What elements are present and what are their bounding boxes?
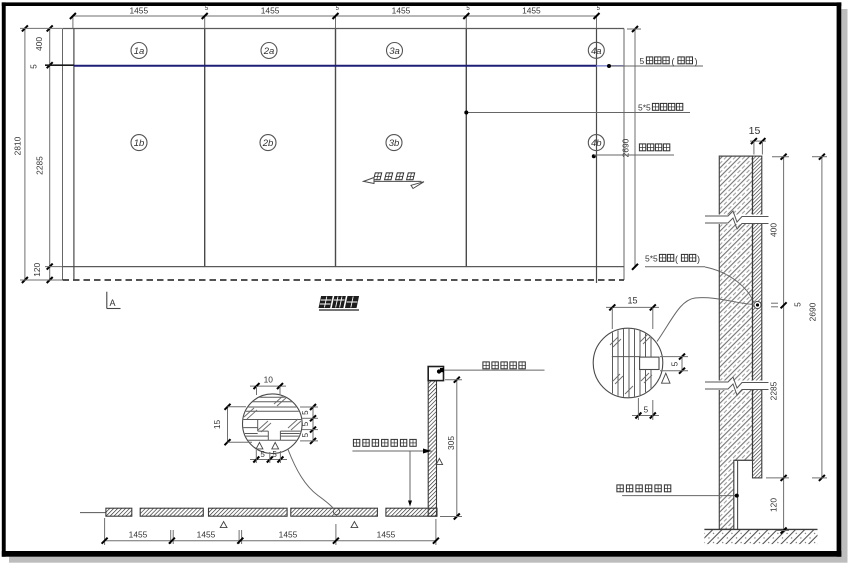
svg-text:4b: 4b — [591, 138, 602, 149]
svg-text:A: A — [110, 298, 116, 308]
svg-text:15: 15 — [749, 125, 761, 137]
svg-text:2810: 2810 — [13, 136, 23, 155]
svg-text:2b: 2b — [262, 138, 274, 149]
svg-text:1455: 1455 — [129, 530, 148, 540]
svg-text:1455: 1455 — [129, 6, 148, 16]
svg-text:5: 5 — [793, 302, 803, 307]
svg-text:): ) — [695, 57, 698, 67]
svg-text:(: ( — [672, 57, 675, 67]
svg-text:5: 5 — [301, 410, 310, 415]
svg-text:5: 5 — [301, 432, 310, 437]
svg-text:2690: 2690 — [808, 302, 818, 321]
svg-text:(: ( — [675, 254, 678, 264]
svg-text:2285: 2285 — [34, 156, 44, 175]
svg-text:1a: 1a — [134, 46, 145, 57]
svg-text:3b: 3b — [389, 138, 400, 149]
svg-text:305: 305 — [446, 436, 456, 450]
svg-text:120: 120 — [769, 498, 779, 512]
svg-text:1455: 1455 — [197, 530, 216, 540]
svg-text:5: 5 — [640, 56, 645, 66]
svg-text:2285: 2285 — [769, 381, 779, 400]
svg-text:5: 5 — [643, 405, 648, 415]
svg-text:5: 5 — [272, 450, 277, 459]
svg-text:5: 5 — [301, 421, 310, 426]
svg-text:1455: 1455 — [392, 6, 411, 16]
svg-text:1b: 1b — [134, 138, 145, 149]
svg-text:1455: 1455 — [279, 530, 298, 540]
svg-text:10: 10 — [264, 375, 274, 385]
svg-text:4a: 4a — [591, 46, 602, 57]
svg-text:400: 400 — [34, 37, 44, 51]
svg-text:1455: 1455 — [261, 6, 280, 16]
svg-text:15: 15 — [627, 296, 637, 306]
svg-text:3a: 3a — [389, 46, 400, 57]
svg-text:5*5: 5*5 — [645, 254, 658, 264]
svg-text:120: 120 — [32, 262, 42, 276]
svg-text:2a: 2a — [263, 46, 275, 57]
svg-text:5: 5 — [670, 361, 680, 366]
svg-text:1455: 1455 — [522, 6, 541, 16]
svg-text:1455: 1455 — [377, 530, 396, 540]
svg-text:15: 15 — [212, 420, 222, 430]
svg-text:5: 5 — [260, 450, 265, 459]
svg-text:5: 5 — [29, 64, 39, 69]
svg-text:5*5: 5*5 — [638, 103, 651, 113]
svg-text:): ) — [697, 254, 700, 264]
svg-text:2690: 2690 — [621, 138, 631, 157]
svg-text:400: 400 — [769, 223, 779, 237]
